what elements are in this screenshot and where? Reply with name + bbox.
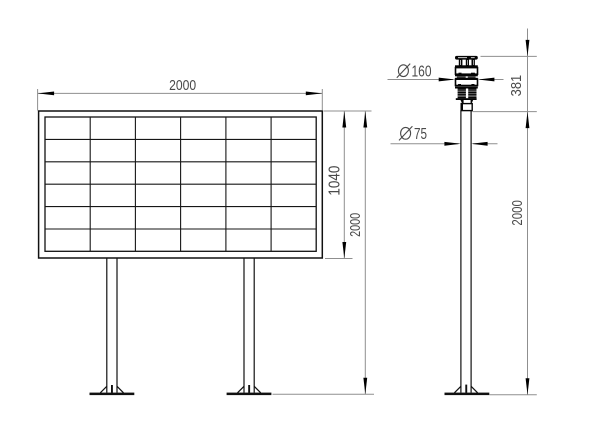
svg-text:2000: 2000: [509, 200, 526, 226]
svg-text:2000: 2000: [169, 77, 196, 94]
svg-text:160: 160: [412, 64, 432, 81]
svg-text:381: 381: [508, 75, 525, 97]
svg-text:1040: 1040: [326, 166, 343, 196]
svg-text:2000: 2000: [347, 213, 364, 237]
svg-text:75: 75: [414, 126, 427, 143]
